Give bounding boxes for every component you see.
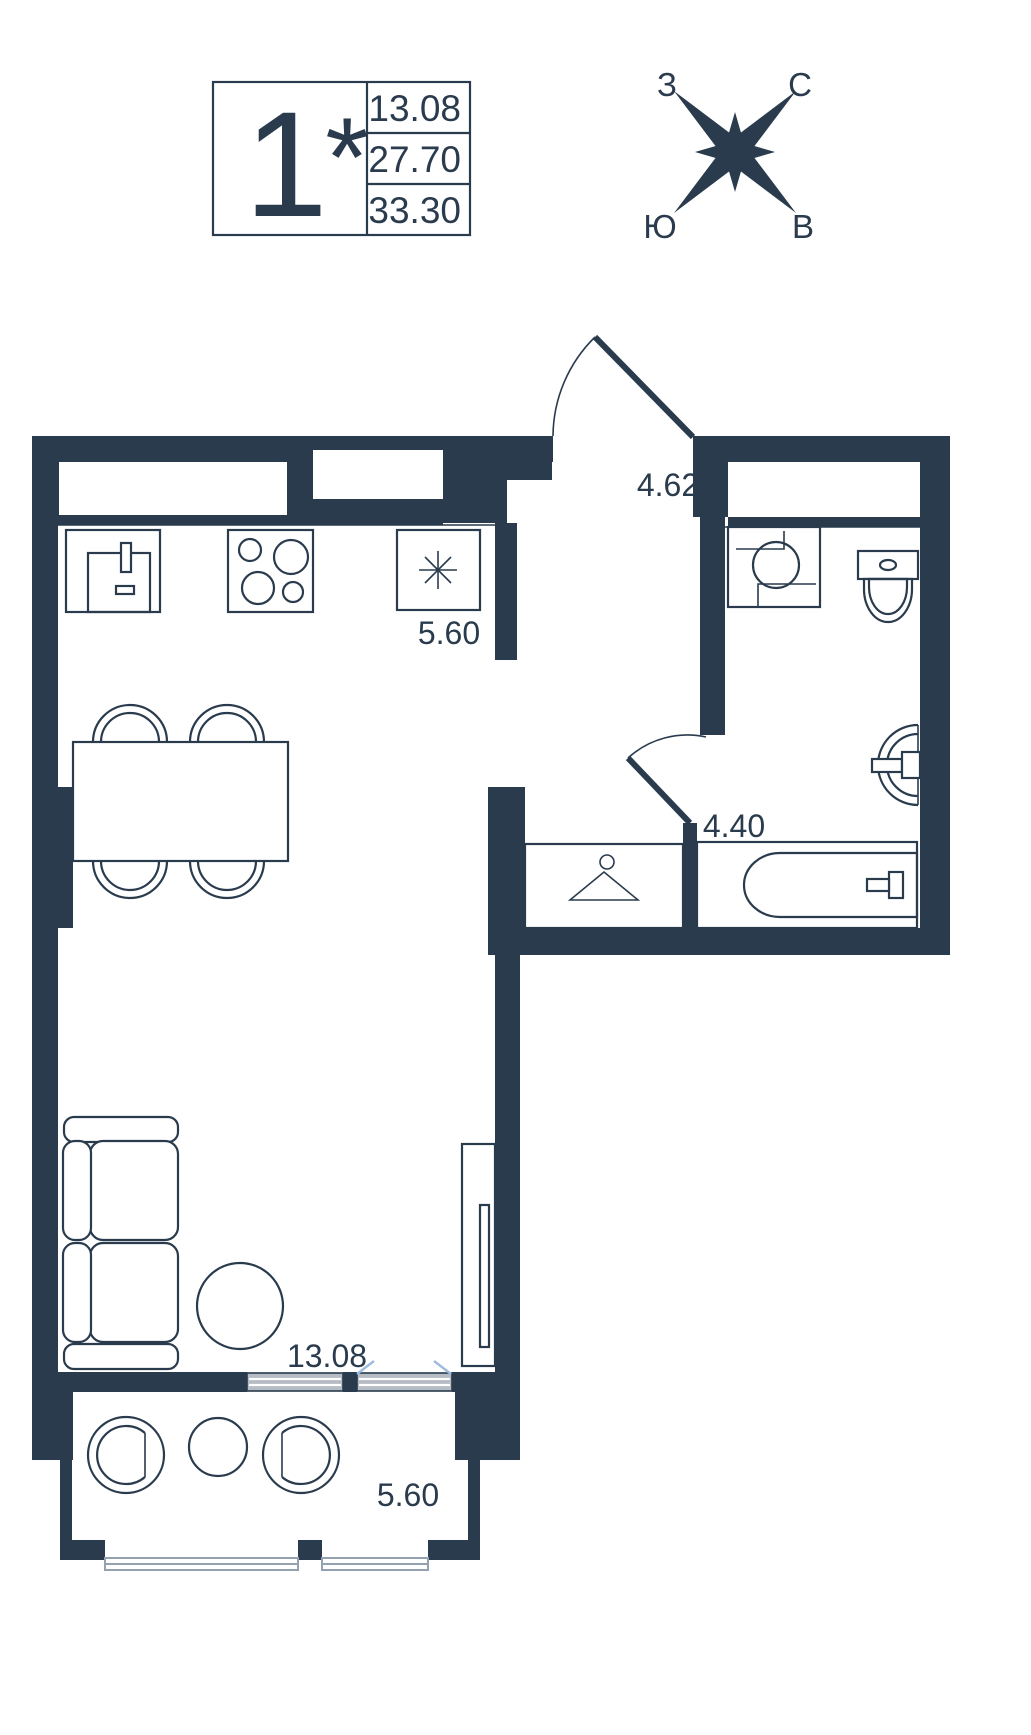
floor-plan-canvas: 1 * 13.08 27.70 33.30 З С Ю В [0, 0, 1031, 1735]
bathroom-door-swing-arc [628, 735, 706, 758]
washbasin-icon [728, 527, 820, 607]
bathroom-door-leaf [628, 758, 690, 823]
dining-chair [93, 861, 167, 898]
compass-label-west: З [657, 66, 677, 103]
legend-room-count: 1 [244, 80, 327, 248]
balcony-table [189, 1418, 247, 1476]
balcony-windows [105, 1558, 428, 1570]
dining-chair [190, 705, 264, 742]
wall-sink-icon [872, 725, 920, 805]
legend-value-living: 13.08 [368, 88, 461, 129]
tv-stand [462, 1144, 495, 1366]
room-label-bathroom: 4.40 [703, 808, 765, 844]
compass-label-south: Ю [643, 208, 676, 245]
compass-rose: З С Ю В [643, 66, 814, 245]
kitchen-sink-icon [66, 530, 160, 612]
balcony-armchair [88, 1417, 164, 1493]
compass-label-north: С [788, 66, 812, 103]
legend-value-area: 27.70 [368, 139, 461, 180]
legend-star: * [325, 95, 369, 220]
tv-icon [480, 1205, 489, 1347]
dining-table [73, 742, 288, 861]
balcony-armchair [263, 1417, 339, 1493]
dining-chair [93, 705, 167, 742]
entrance-door-leaf [595, 337, 693, 437]
window-opening-tick [434, 1361, 451, 1374]
sofa [63, 1117, 178, 1369]
legend-value-total: 33.30 [368, 190, 461, 231]
dining-chair [190, 861, 264, 898]
legend-card: 1 * 13.08 27.70 33.30 [213, 80, 470, 248]
wardrobe [525, 844, 683, 928]
bathroom-door [628, 735, 706, 823]
room-label-kitchen: 5.60 [418, 615, 480, 651]
compass-label-east: В [792, 208, 814, 245]
entrance-door-swing-arc [553, 337, 595, 436]
room-label-living: 13.08 [287, 1338, 367, 1374]
bathtub-icon [697, 842, 917, 928]
stove-icon [228, 530, 313, 612]
toilet-icon [858, 551, 918, 622]
fridge-icon [397, 530, 480, 610]
coffee-table [197, 1263, 283, 1349]
room-label-balcony: 5.60 [377, 1477, 439, 1513]
room-label-hall: 4.62 [637, 467, 699, 503]
entrance-door [553, 337, 693, 437]
